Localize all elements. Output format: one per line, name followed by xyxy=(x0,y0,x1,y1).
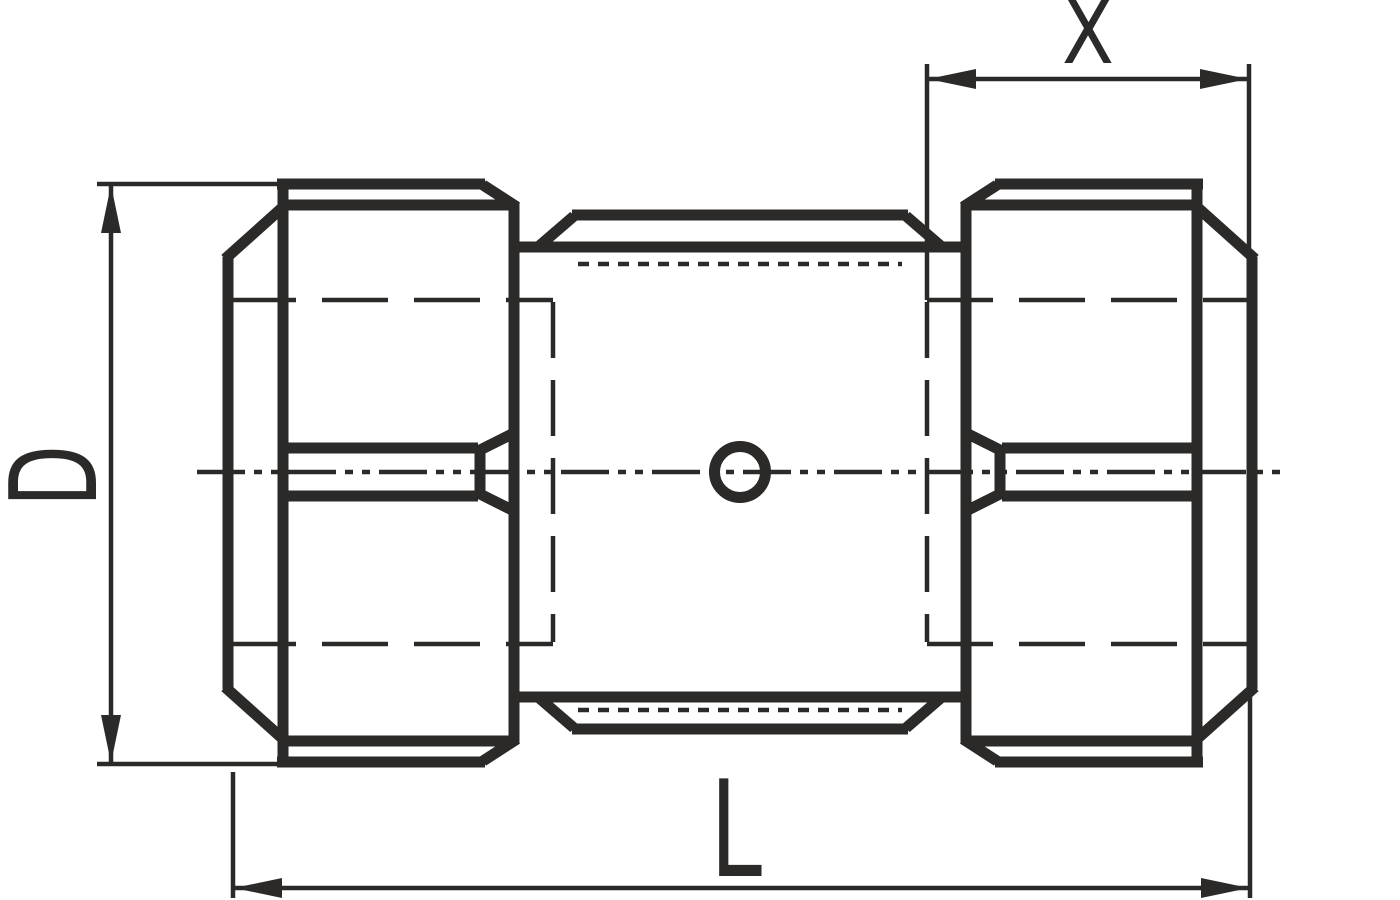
right-nut-top-right-chamfer xyxy=(1197,207,1255,259)
d-arrow-up xyxy=(101,185,121,233)
x-arrow-left xyxy=(928,69,976,89)
x-arrow-right xyxy=(1200,69,1248,89)
d-arrow-down xyxy=(101,715,121,763)
dimension-arrowheads xyxy=(101,69,1249,898)
dimension-label-x: X xyxy=(1062,0,1114,84)
body-thread-dashes xyxy=(578,264,902,710)
dimension-label-l: L xyxy=(710,752,762,900)
left-nut-top-left-chamfer xyxy=(225,207,283,259)
right-nut-bottom-right-chamfer xyxy=(1197,687,1255,739)
pipe-coupling-drawing: D L X xyxy=(0,0,1400,900)
l-arrow-left xyxy=(234,878,282,898)
left-nut-bottom-left-chamfer xyxy=(225,687,283,739)
l-arrow-right xyxy=(1201,878,1249,898)
technical-drawing-page: D L X xyxy=(0,0,1400,900)
dimension-label-d: D xyxy=(0,445,125,507)
